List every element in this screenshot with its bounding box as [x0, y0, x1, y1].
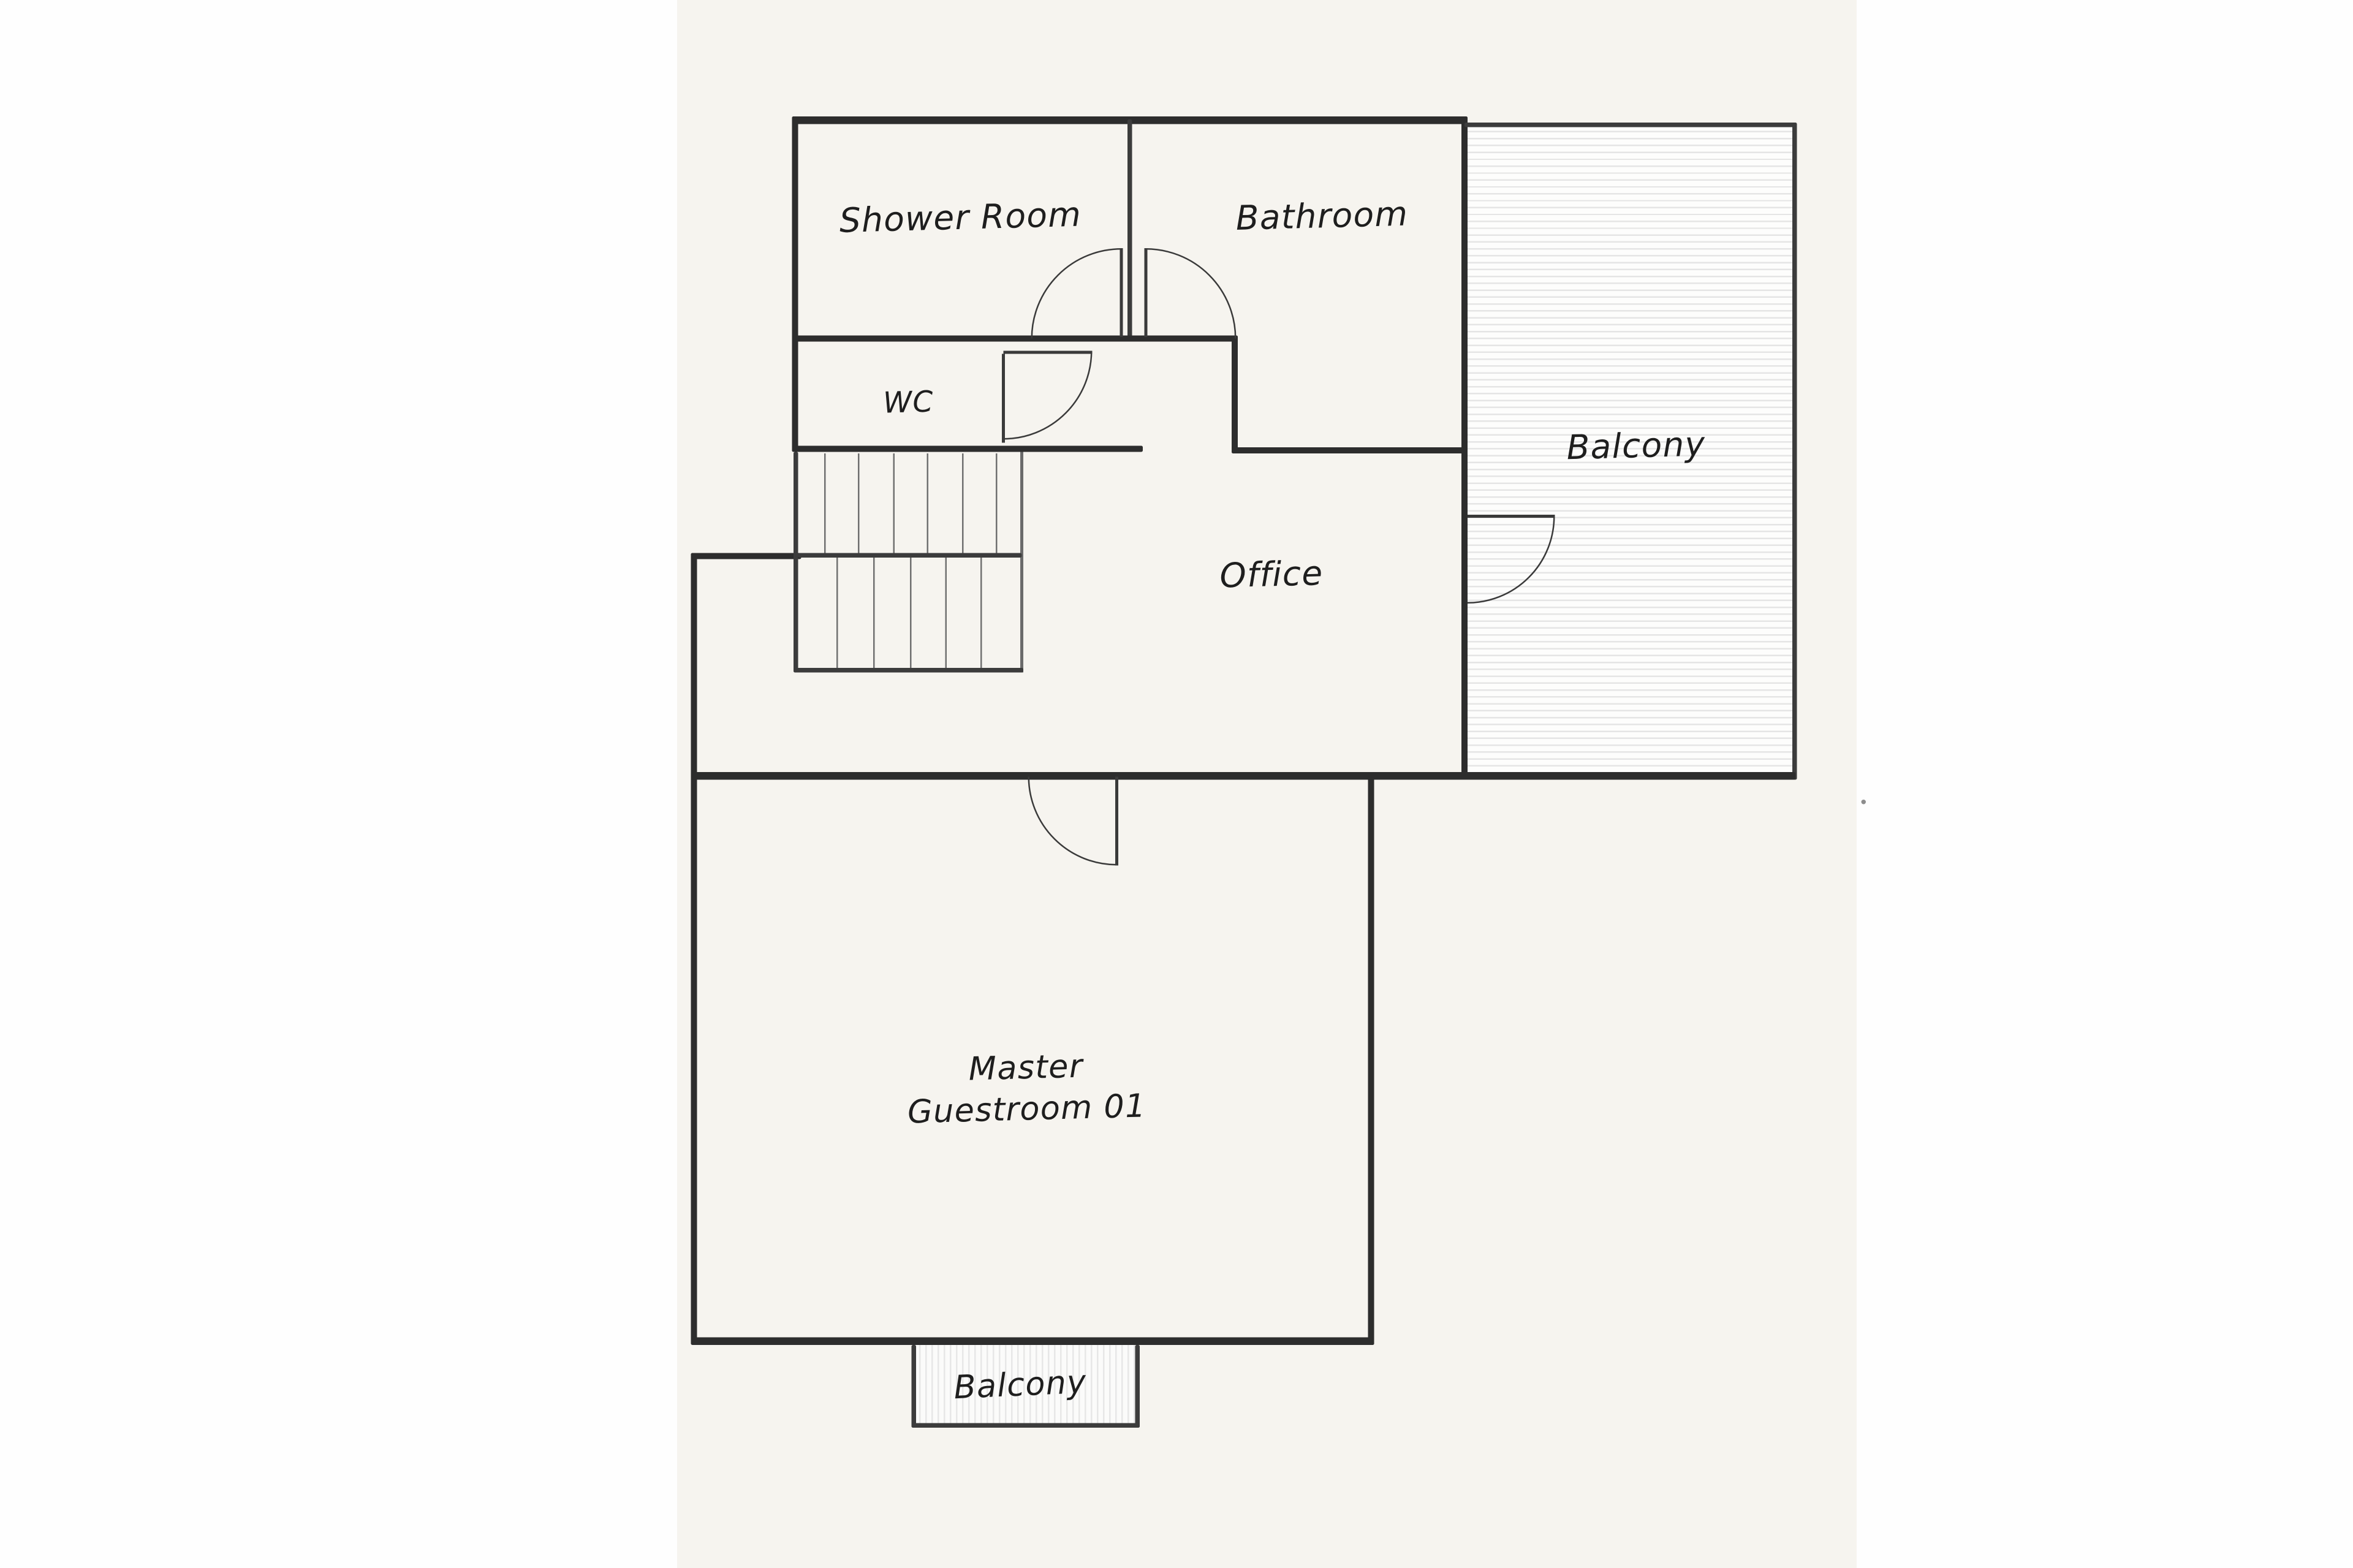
stair-left-edge — [794, 452, 798, 673]
wall-left-upper — [792, 116, 798, 452]
stray-mark — [1862, 800, 1866, 805]
stair-tread — [893, 453, 895, 553]
stair-tread — [980, 558, 982, 668]
wall-wc-bottom — [792, 446, 1143, 452]
stair-tread — [996, 453, 998, 553]
wall-shower-bathroom-divider — [1127, 119, 1132, 340]
wall-right-main — [1461, 116, 1468, 780]
wall-guestroom-right — [1368, 772, 1374, 1345]
stair-tread — [910, 558, 912, 668]
master-guestroom-label-line1: Master — [906, 1045, 1145, 1093]
stair-landing-line — [798, 553, 1022, 557]
wall-bottom-main — [691, 772, 1796, 780]
master-guestroom-label-line2: Guestroom 01 — [907, 1086, 1146, 1134]
wall-balcony-bottom-left — [912, 1345, 915, 1428]
wall-balcony-bottom-bottom — [912, 1423, 1139, 1428]
stair-tread — [962, 453, 964, 553]
stair-tread — [836, 558, 838, 668]
master-guestroom-label: Master Guestroom 01 — [906, 1045, 1146, 1134]
wall-balcony-bottom-right — [1135, 1345, 1139, 1428]
stair-tread — [858, 453, 860, 553]
wall-left-main — [691, 553, 697, 1344]
stair-tread — [873, 558, 875, 668]
wall-office-top — [1232, 447, 1468, 453]
bathroom-label: Bathroom — [1235, 196, 1409, 239]
wall-balcony-right — [1792, 123, 1796, 780]
stair-tread — [824, 453, 826, 553]
stair-right-edge — [1020, 452, 1023, 673]
balcony-right-label: Balcony — [1566, 426, 1706, 468]
shower-room-label: Shower Room — [839, 197, 1082, 241]
office-label: Office — [1219, 556, 1324, 597]
wall-extension-top — [691, 553, 801, 559]
floor-plan-canvas: Shower Room Bathroom WC Balcony Office M… — [0, 0, 2353, 1568]
balcony-bottom-label: Balcony — [953, 1363, 1087, 1406]
stair-bottom-edge — [794, 668, 1023, 673]
wall-guestroom-bottom — [691, 1338, 1374, 1346]
wc-label: WC — [882, 385, 934, 420]
wall-hall-right — [1232, 336, 1238, 454]
stair-tread — [945, 558, 947, 668]
stair-tread — [927, 453, 929, 553]
wall-balcony-top — [1464, 123, 1795, 126]
